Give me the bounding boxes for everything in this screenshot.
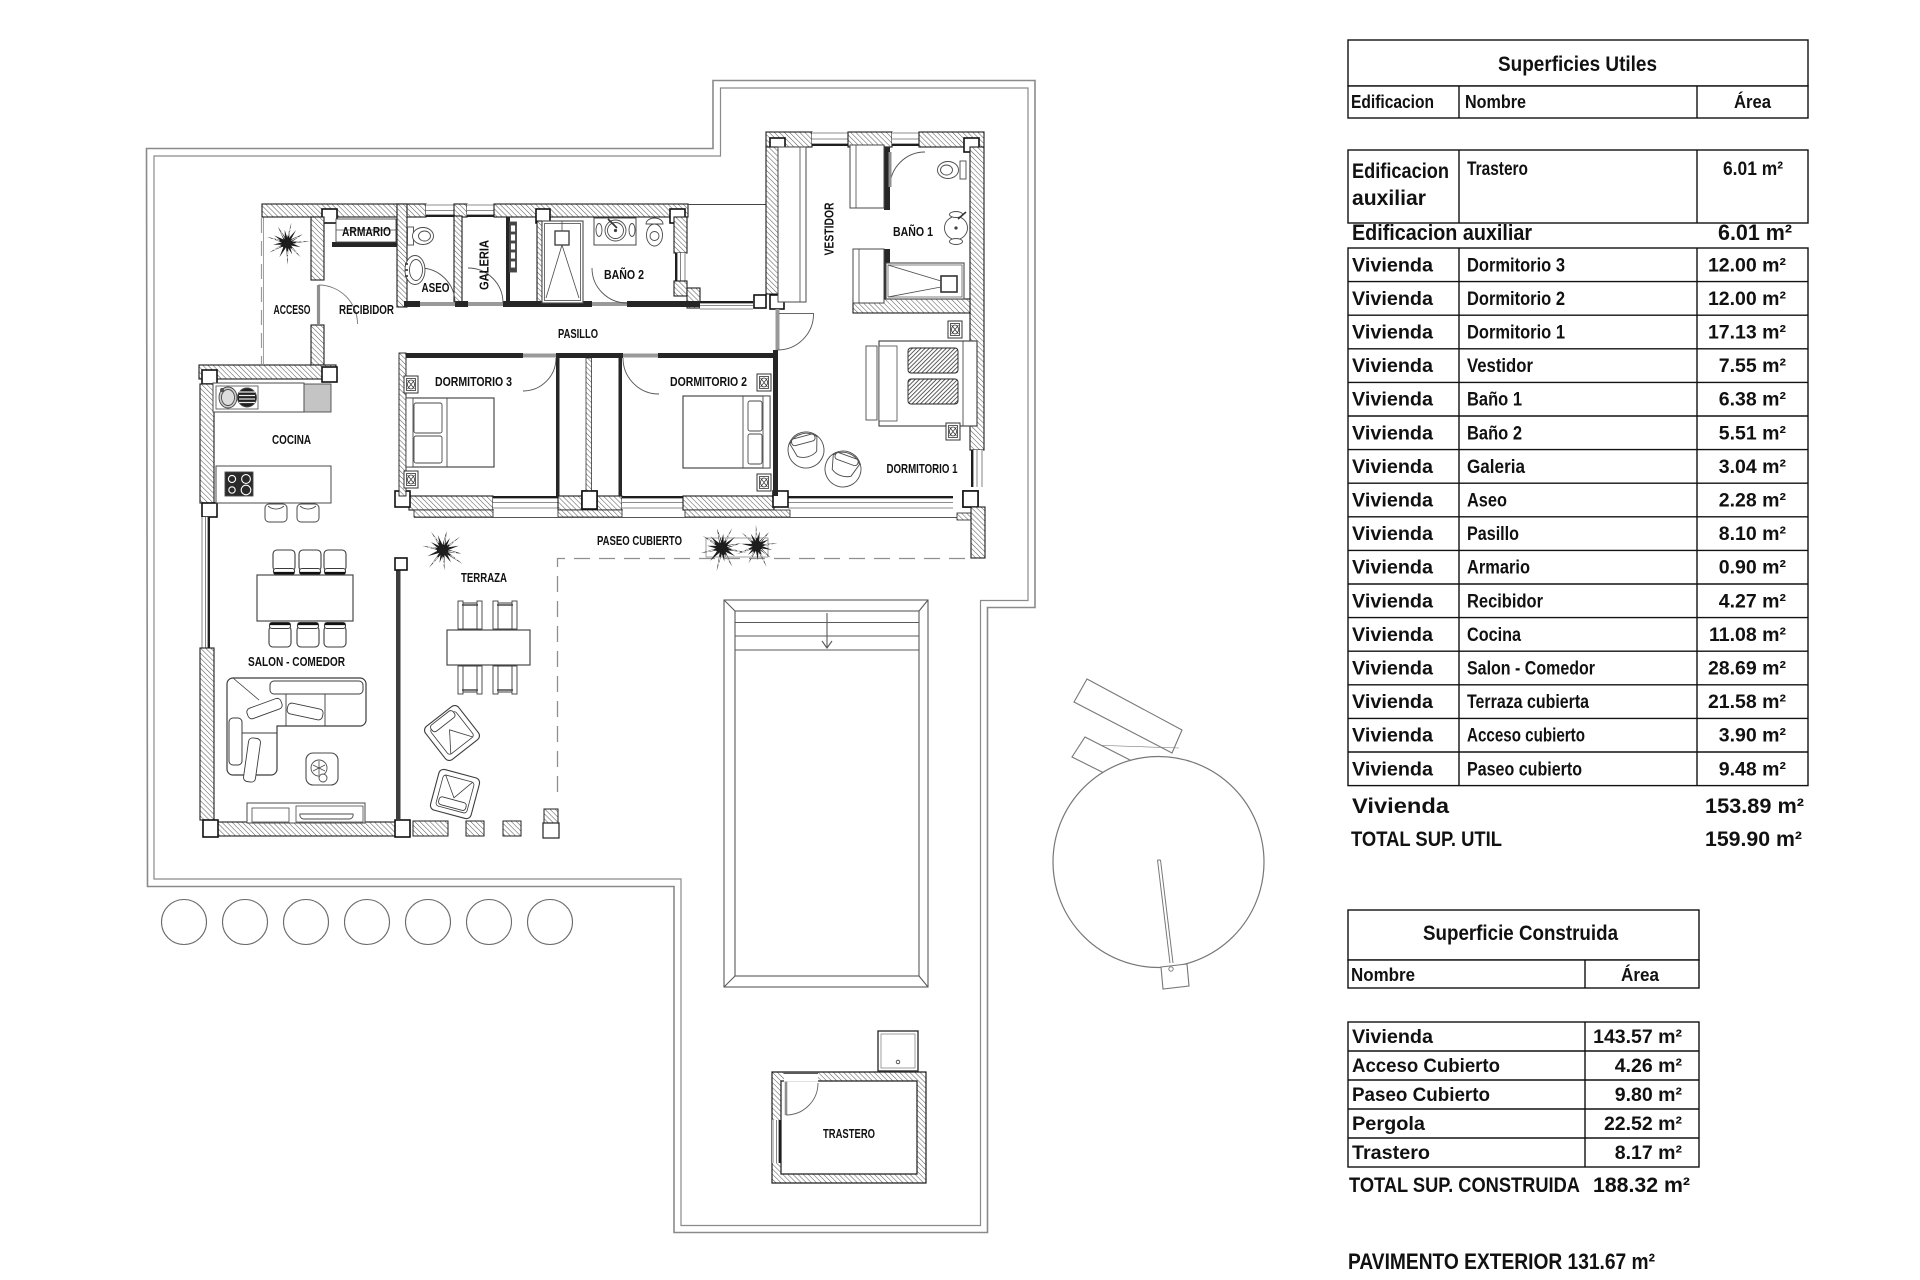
svg-text:Vivienda: Vivienda [1352, 758, 1433, 780]
svg-text:Dormitorio 2: Dormitorio 2 [1467, 288, 1565, 310]
svg-text:Vivienda: Vivienda [1352, 288, 1433, 310]
svg-text:VESTIDOR: VESTIDOR [823, 203, 837, 256]
svg-text:Paseo cubierto: Paseo cubierto [1467, 758, 1582, 780]
svg-text:188.32 m²: 188.32 m² [1593, 1174, 1690, 1197]
svg-text:Nombre: Nombre [1351, 964, 1415, 985]
svg-text:153.89 m²: 153.89 m² [1705, 795, 1804, 818]
svg-text:Vivienda: Vivienda [1352, 389, 1433, 411]
svg-text:BAÑO 2: BAÑO 2 [604, 267, 644, 282]
svg-text:4.27 m²: 4.27 m² [1719, 590, 1787, 612]
svg-text:Vivienda: Vivienda [1352, 322, 1433, 344]
svg-text:Dormitorio 1: Dormitorio 1 [1467, 322, 1565, 344]
svg-text:0.90 m²: 0.90 m² [1719, 557, 1787, 579]
svg-text:ARMARIO: ARMARIO [342, 225, 391, 239]
svg-text:Vestidor: Vestidor [1467, 355, 1533, 377]
svg-text:Vivienda: Vivienda [1352, 590, 1433, 612]
svg-text:TOTAL SUP. UTIL: TOTAL SUP. UTIL [1351, 828, 1502, 851]
svg-text:8.10 m²: 8.10 m² [1719, 523, 1787, 545]
svg-text:Armario: Armario [1467, 557, 1530, 579]
svg-text:4.26 m²: 4.26 m² [1615, 1055, 1683, 1077]
svg-text:Área: Área [1734, 91, 1772, 112]
svg-text:Vivienda: Vivienda [1352, 658, 1433, 680]
svg-text:9.48 m²: 9.48 m² [1719, 758, 1787, 780]
svg-text:12.00 m²: 12.00 m² [1708, 288, 1787, 310]
svg-text:Vivienda: Vivienda [1352, 523, 1433, 545]
svg-text:Cocina: Cocina [1467, 624, 1521, 646]
svg-text:6.01 m²: 6.01 m² [1718, 220, 1792, 245]
svg-text:Vivienda: Vivienda [1352, 624, 1433, 646]
svg-text:Dormitorio 3: Dormitorio 3 [1467, 254, 1565, 276]
svg-text:Superficie Construida: Superficie Construida [1423, 922, 1618, 945]
svg-text:5.51 m²: 5.51 m² [1719, 422, 1787, 444]
svg-text:Nombre: Nombre [1465, 91, 1526, 112]
svg-text:Vivienda: Vivienda [1352, 725, 1433, 747]
svg-text:Edificacion: Edificacion [1352, 160, 1449, 183]
svg-text:BAÑO 1: BAÑO 1 [893, 224, 933, 239]
svg-text:Salon - Comedor: Salon - Comedor [1467, 658, 1595, 680]
svg-text:ASEO: ASEO [422, 281, 450, 295]
svg-text:22.52 m²: 22.52 m² [1604, 1113, 1683, 1135]
svg-text:Paseo Cubierto: Paseo Cubierto [1352, 1084, 1490, 1106]
svg-text:Trastero: Trastero [1467, 158, 1528, 180]
svg-text:2.28 m²: 2.28 m² [1719, 490, 1787, 512]
svg-text:Terraza cubierta: Terraza cubierta [1467, 691, 1589, 713]
svg-text:DORMITORIO 3: DORMITORIO 3 [435, 375, 512, 389]
svg-text:DORMITORIO 2: DORMITORIO 2 [670, 375, 747, 389]
svg-text:COCINA: COCINA [272, 433, 311, 447]
svg-text:21.58 m²: 21.58 m² [1708, 691, 1787, 713]
svg-text:PASILLO: PASILLO [558, 327, 598, 341]
svg-text:8.17 m²: 8.17 m² [1615, 1142, 1683, 1164]
svg-text:TRASTERO: TRASTERO [823, 1127, 875, 1141]
svg-text:Galeria: Galeria [1467, 456, 1525, 478]
svg-text:17.13 m²: 17.13 m² [1708, 322, 1787, 344]
svg-text:Edificacion auxiliar: Edificacion auxiliar [1352, 220, 1532, 245]
svg-text:Superficies Utiles: Superficies Utiles [1498, 53, 1657, 76]
svg-text:Acceso Cubierto: Acceso Cubierto [1352, 1055, 1500, 1077]
svg-text:Vivienda: Vivienda [1352, 1026, 1433, 1048]
svg-text:Recibidor: Recibidor [1467, 590, 1543, 612]
svg-text:12.00 m²: 12.00 m² [1708, 254, 1787, 276]
svg-text:Vivienda: Vivienda [1352, 490, 1433, 512]
svg-text:Pergola: Pergola [1352, 1113, 1425, 1135]
svg-text:Trastero: Trastero [1352, 1142, 1430, 1164]
svg-text:Baño 2: Baño 2 [1467, 422, 1522, 444]
svg-text:Aseo: Aseo [1467, 490, 1507, 512]
svg-text:PASEO CUBIERTO: PASEO CUBIERTO [597, 534, 682, 548]
svg-text:TERRAZA: TERRAZA [461, 571, 507, 585]
svg-text:Vivienda: Vivienda [1352, 557, 1433, 579]
svg-text:Acceso cubierto: Acceso cubierto [1467, 725, 1585, 747]
svg-text:ACCESO: ACCESO [274, 303, 311, 317]
svg-text:11.08 m²: 11.08 m² [1709, 624, 1786, 646]
svg-text:Edificacion: Edificacion [1351, 91, 1434, 112]
svg-text:7.55 m²: 7.55 m² [1719, 355, 1787, 377]
svg-text:Vivienda: Vivienda [1352, 691, 1433, 713]
svg-text:GALERIA: GALERIA [478, 240, 492, 290]
svg-text:3.90 m²: 3.90 m² [1719, 725, 1787, 747]
svg-text:PAVIMENTO EXTERIOR 131.67 m²: PAVIMENTO EXTERIOR 131.67 m² [1348, 1249, 1655, 1274]
svg-text:Área: Área [1621, 964, 1660, 985]
svg-text:RECIBIDOR: RECIBIDOR [339, 303, 394, 317]
svg-text:auxiliar: auxiliar [1352, 187, 1426, 210]
svg-text:6.38 m²: 6.38 m² [1719, 389, 1787, 411]
svg-text:Baño 1: Baño 1 [1467, 389, 1522, 411]
svg-text:Vivienda: Vivienda [1352, 456, 1433, 478]
svg-text:159.90 m²: 159.90 m² [1705, 828, 1802, 851]
svg-text:28.69 m²: 28.69 m² [1708, 658, 1787, 680]
svg-text:TOTAL SUP. CONSTRUIDA: TOTAL SUP. CONSTRUIDA [1349, 1174, 1580, 1197]
svg-text:Vivienda: Vivienda [1352, 422, 1433, 444]
svg-text:Vivienda: Vivienda [1352, 355, 1433, 377]
svg-text:Vivienda: Vivienda [1352, 254, 1433, 276]
svg-text:DORMITORIO 1: DORMITORIO 1 [887, 462, 958, 476]
svg-text:143.57 m²: 143.57 m² [1593, 1026, 1682, 1048]
svg-text:9.80 m²: 9.80 m² [1615, 1084, 1683, 1106]
svg-text:3.04 m²: 3.04 m² [1719, 456, 1787, 478]
svg-text:SALON - COMEDOR: SALON - COMEDOR [248, 655, 345, 669]
svg-text:Vivienda: Vivienda [1352, 795, 1449, 818]
svg-text:6.01 m²: 6.01 m² [1723, 158, 1783, 180]
svg-text:Pasillo: Pasillo [1467, 523, 1519, 545]
